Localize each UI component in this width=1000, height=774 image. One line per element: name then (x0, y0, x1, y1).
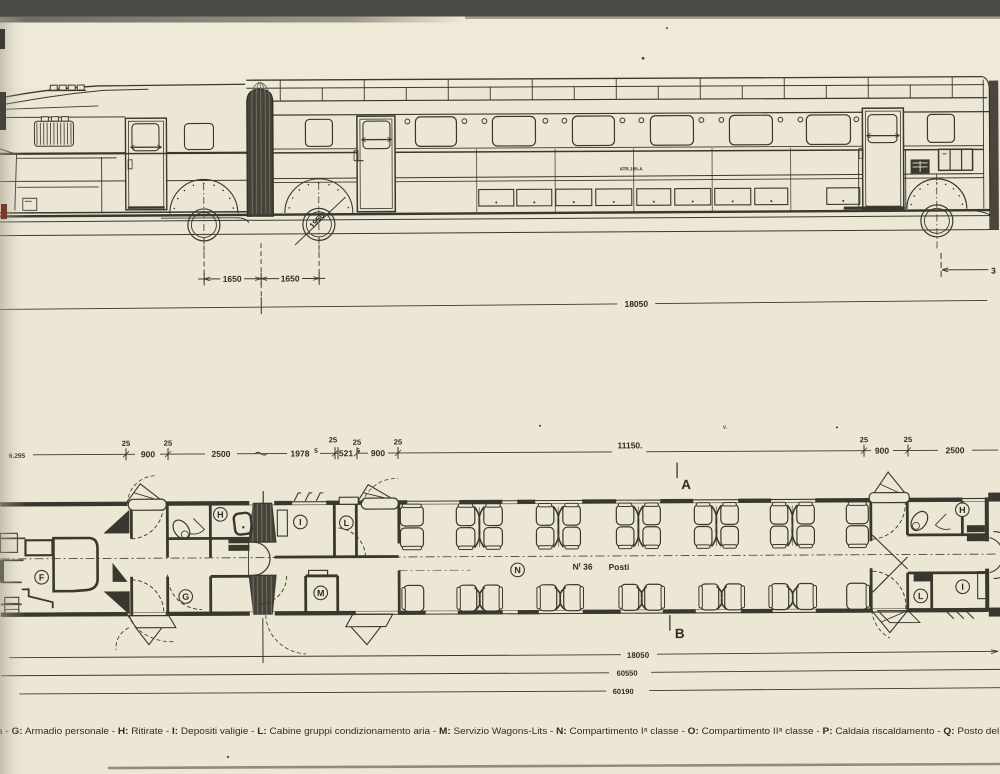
svg-text:L: L (344, 518, 350, 528)
svg-text:1978: 1978 (291, 448, 310, 458)
svg-text:B: B (675, 626, 685, 641)
svg-text:2500: 2500 (946, 445, 965, 455)
svg-text:a - G: Armadio personale - H:: a - G: Armadio personale - H: Ritirate -… (0, 725, 1000, 736)
svg-text:M: M (317, 588, 325, 598)
svg-text:L: L (918, 591, 924, 601)
svg-text:25: 25 (860, 435, 868, 444)
svg-text:1650: 1650 (281, 273, 300, 283)
svg-text:2500: 2500 (212, 449, 231, 459)
svg-text:H: H (217, 510, 224, 520)
svg-text:Posti: Posti (609, 562, 630, 572)
svg-text:Nt 36: Nt 36 (573, 562, 593, 572)
svg-text:18050: 18050 (627, 651, 650, 660)
svg-text:FA: FA (917, 575, 924, 581)
svg-text:F: F (39, 572, 45, 582)
svg-text:N: N (514, 565, 521, 575)
svg-text:5: 5 (356, 448, 360, 455)
svg-text:25: 25 (329, 435, 337, 444)
svg-text:ATR.105-A: ATR.105-A (620, 166, 644, 171)
svg-text:v.: v. (723, 424, 728, 431)
svg-text:A: A (681, 477, 691, 492)
svg-text:H: H (959, 505, 966, 515)
svg-text:I: I (299, 517, 302, 527)
svg-text:900: 900 (371, 448, 386, 458)
svg-text:3: 3 (991, 266, 996, 276)
svg-text:521: 521 (339, 448, 354, 458)
svg-text:25: 25 (394, 437, 402, 446)
svg-text:25: 25 (164, 439, 172, 448)
svg-text:1650: 1650 (223, 274, 242, 284)
svg-text:900: 900 (875, 446, 890, 456)
svg-text:5: 5 (314, 448, 318, 455)
svg-text:11150.: 11150. (617, 440, 642, 450)
svg-text:I: I (961, 582, 964, 592)
svg-text:25: 25 (122, 439, 130, 448)
svg-text:25: 25 (353, 438, 361, 447)
svg-text:60550: 60550 (617, 669, 638, 678)
svg-text:G: G (182, 592, 189, 602)
svg-text:25: 25 (904, 435, 912, 444)
svg-text:900: 900 (141, 449, 156, 459)
svg-text:60190: 60190 (613, 687, 634, 696)
svg-text:18050: 18050 (624, 299, 648, 309)
